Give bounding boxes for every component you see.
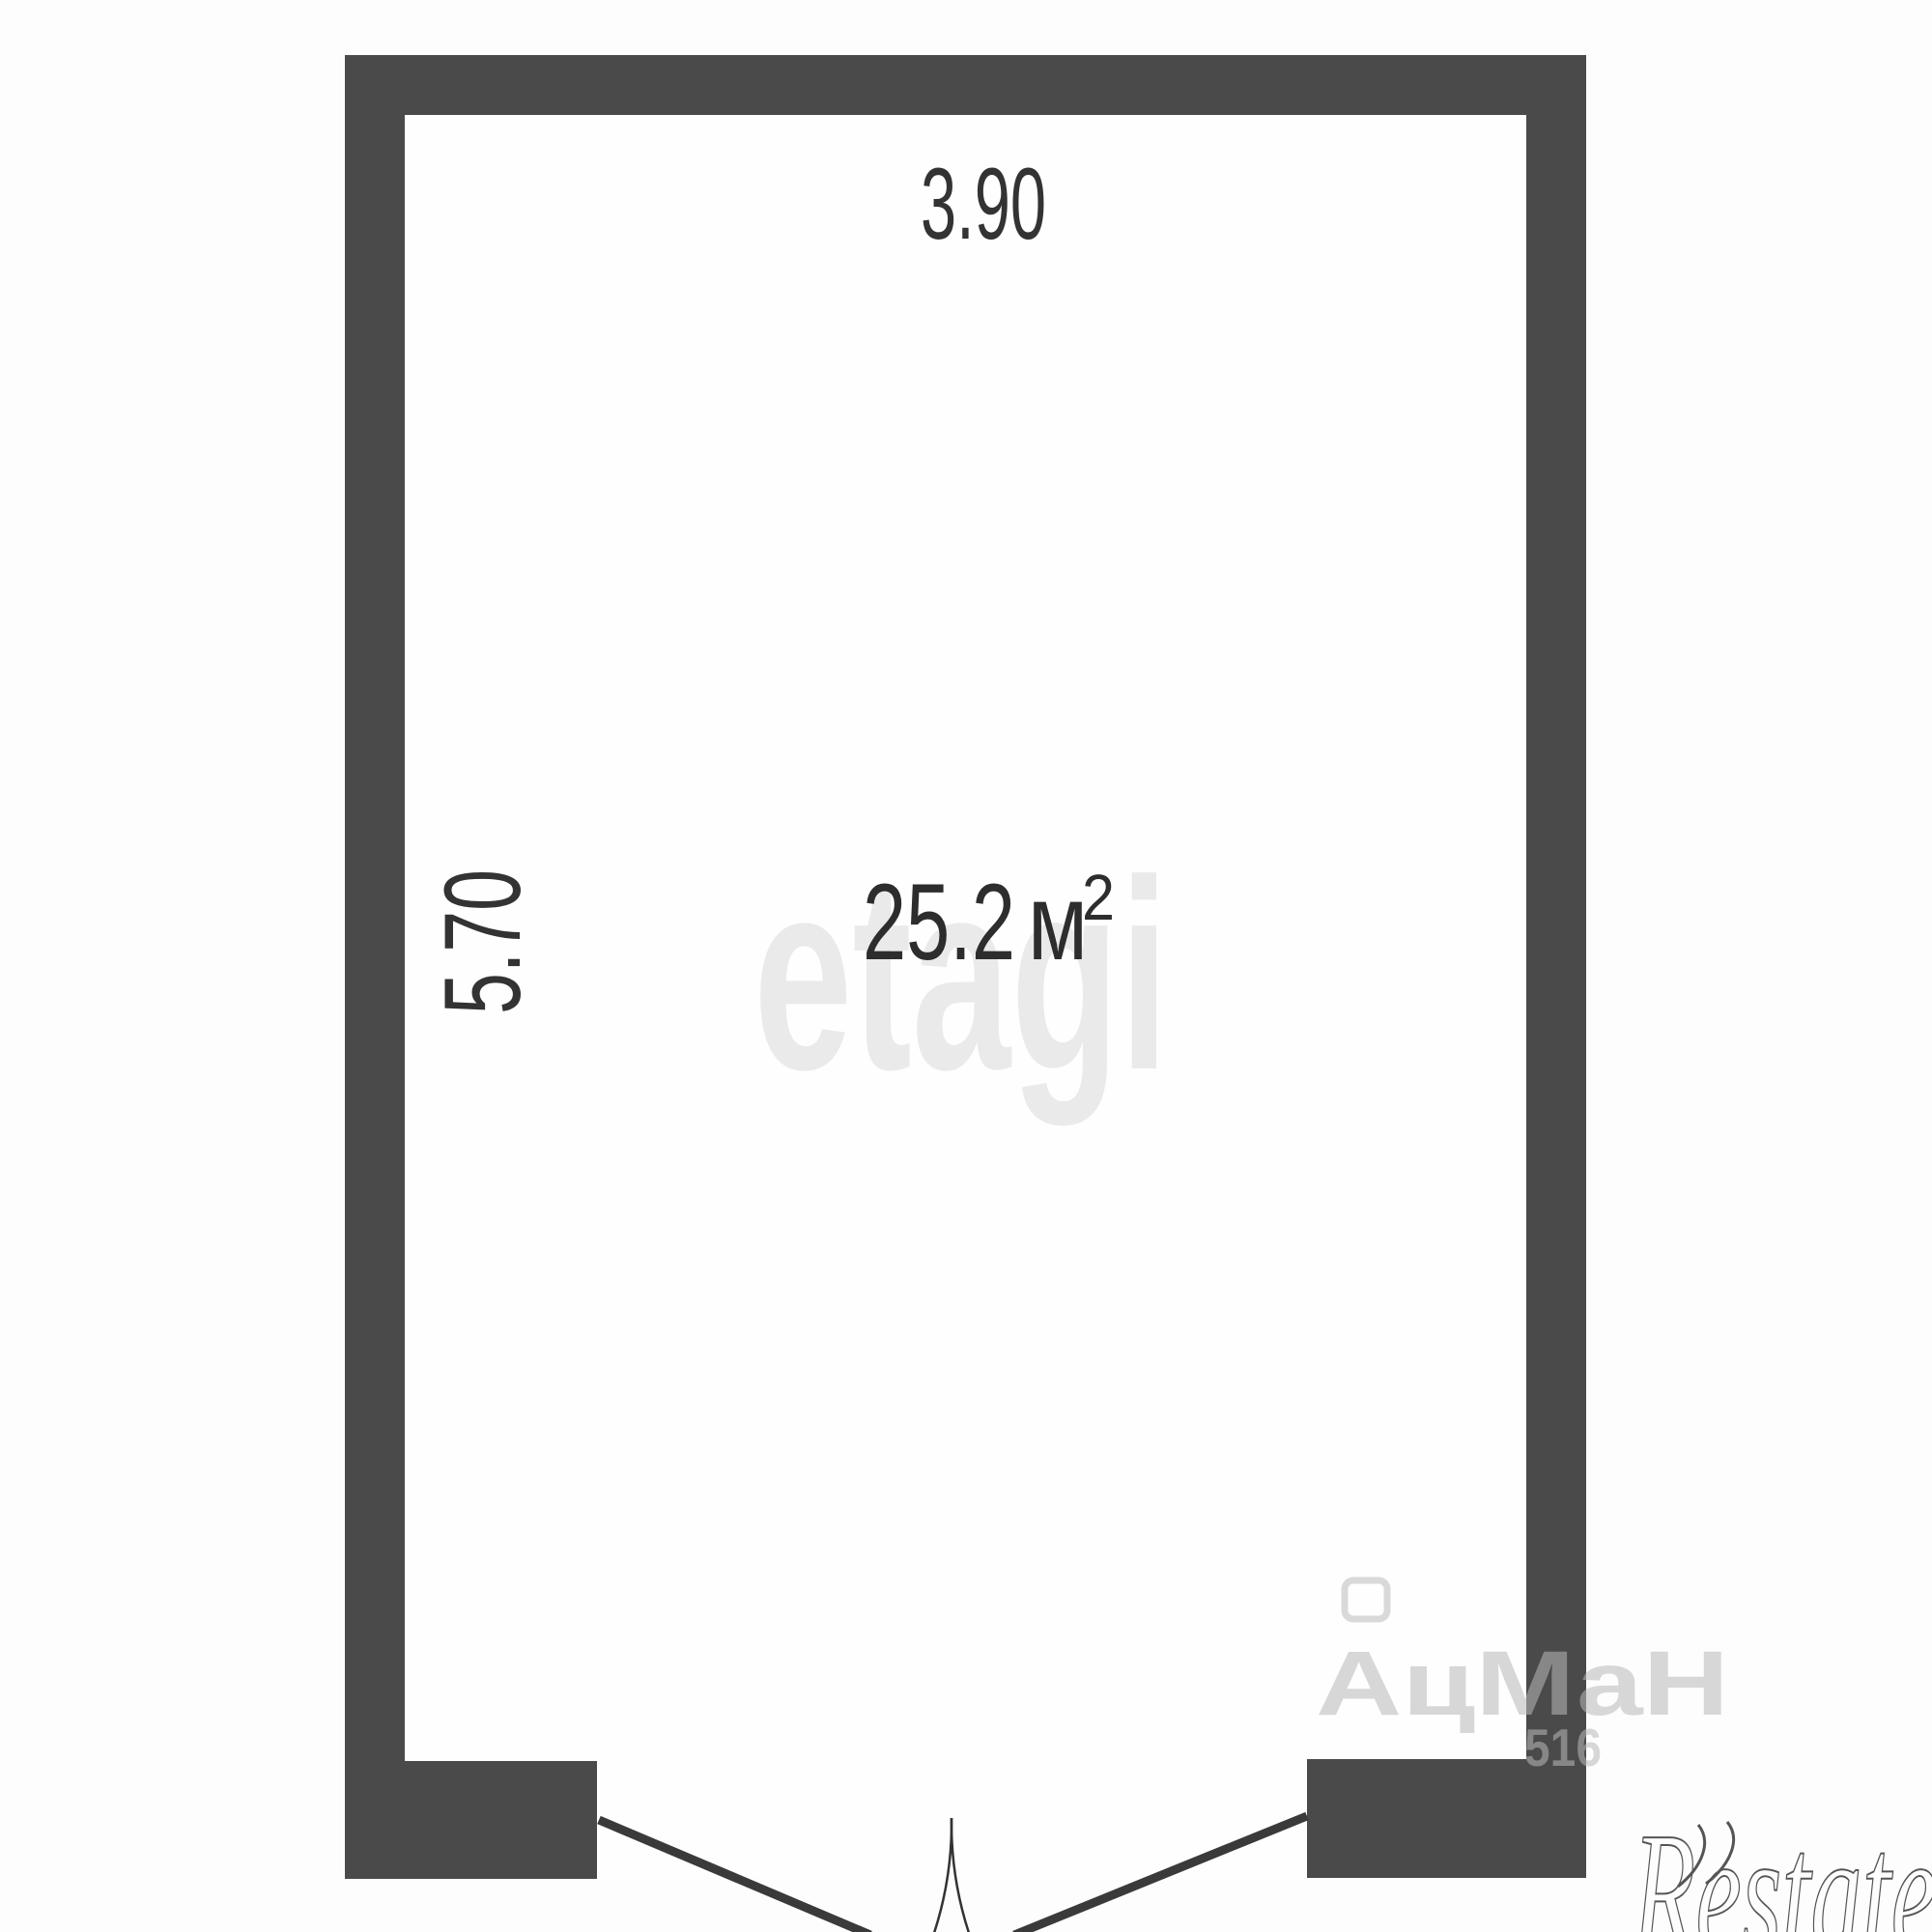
svg-text:5.70: 5.70 xyxy=(422,869,543,1014)
svg-text:м: м xyxy=(1028,862,1088,982)
svg-text:25.2: 25.2 xyxy=(863,862,1015,982)
svg-text:516: 516 xyxy=(1524,1718,1602,1777)
svg-text:Restate: Restate xyxy=(1632,1797,1932,1932)
svg-text:3.90: 3.90 xyxy=(921,148,1046,261)
svg-text:2: 2 xyxy=(1082,862,1115,934)
svg-text:АцМаН: АцМаН xyxy=(1316,1633,1729,1735)
